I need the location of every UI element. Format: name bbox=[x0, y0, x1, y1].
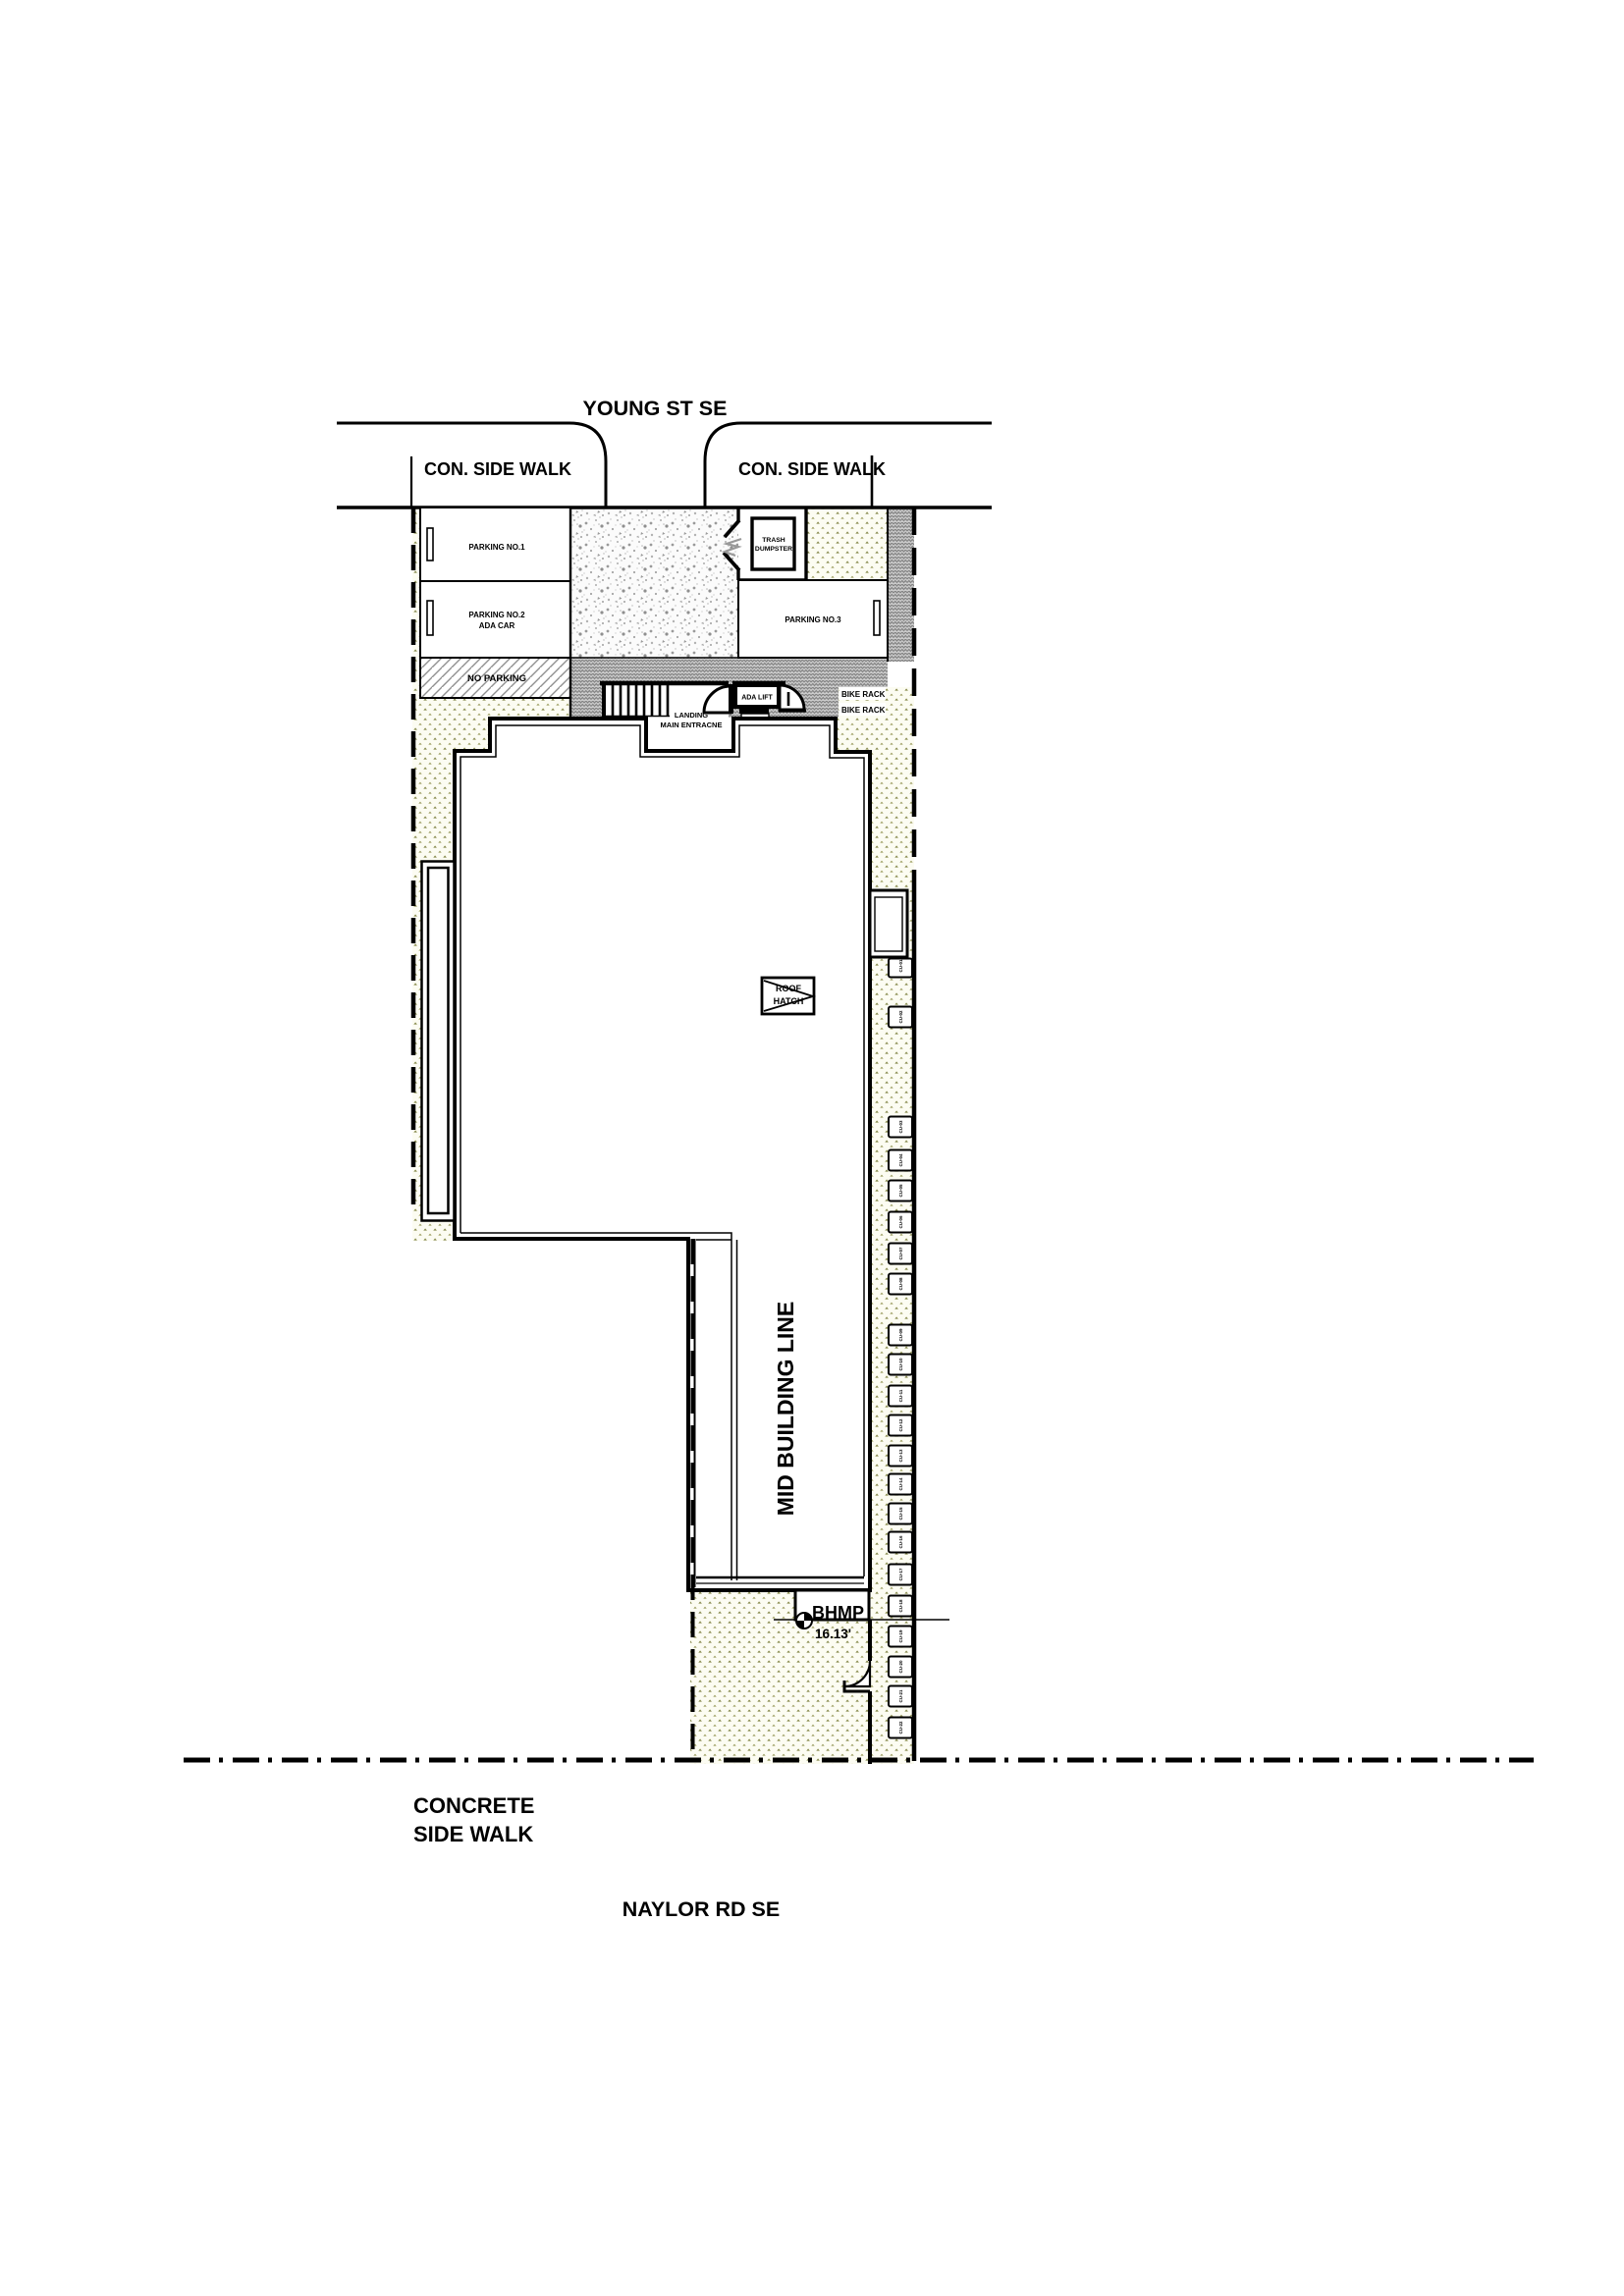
svg-text:CU-05: CU-05 bbox=[898, 1184, 903, 1198]
svg-text:CONCRETE: CONCRETE bbox=[413, 1793, 534, 1818]
svg-text:CU-16: CU-16 bbox=[898, 1535, 903, 1549]
svg-text:TRASH: TRASH bbox=[762, 537, 785, 544]
svg-text:CON. SIDE WALK: CON. SIDE WALK bbox=[424, 459, 571, 479]
svg-text:CU-18: CU-18 bbox=[898, 1599, 903, 1613]
svg-text:CU-15: CU-15 bbox=[898, 1507, 903, 1521]
svg-text:CU-07: CU-07 bbox=[898, 1247, 903, 1260]
svg-text:CU-17: CU-17 bbox=[898, 1568, 903, 1581]
svg-text:NAYLOR RD SE: NAYLOR RD SE bbox=[623, 1897, 780, 1921]
svg-text:YOUNG ST SE: YOUNG ST SE bbox=[583, 397, 728, 420]
svg-text:BIKE RACK: BIKE RACK bbox=[841, 690, 886, 699]
svg-text:CON. SIDE WALK: CON. SIDE WALK bbox=[738, 459, 886, 479]
svg-text:CU-11: CU-11 bbox=[898, 1389, 903, 1402]
svg-text:BHMP: BHMP bbox=[812, 1603, 864, 1623]
svg-text:DUMPSTER: DUMPSTER bbox=[755, 546, 792, 553]
svg-text:CU-03: CU-03 bbox=[898, 1120, 903, 1134]
svg-text:CU-19: CU-19 bbox=[898, 1629, 903, 1643]
svg-text:NO PARKING: NO PARKING bbox=[467, 673, 526, 684]
svg-text:CU-10: CU-10 bbox=[898, 1358, 903, 1371]
svg-text:CU-01: CU-01 bbox=[898, 959, 903, 973]
svg-text:CU-02: CU-02 bbox=[898, 1010, 903, 1024]
svg-text:CU-09: CU-09 bbox=[898, 1328, 903, 1342]
svg-text:HATCH: HATCH bbox=[774, 996, 804, 1006]
svg-text:MID BUILDING LINE: MID BUILDING LINE bbox=[773, 1302, 798, 1517]
svg-text:ADA LIFT: ADA LIFT bbox=[741, 695, 773, 702]
svg-text:CU-21: CU-21 bbox=[898, 1689, 903, 1703]
svg-text:CU-12: CU-12 bbox=[898, 1418, 903, 1432]
svg-text:CU-13: CU-13 bbox=[898, 1449, 903, 1463]
svg-text:CU-06: CU-06 bbox=[898, 1215, 903, 1229]
svg-text:LANDING: LANDING bbox=[675, 711, 708, 720]
svg-text:CU-22: CU-22 bbox=[898, 1721, 903, 1735]
svg-text:CU-20: CU-20 bbox=[898, 1660, 903, 1674]
svg-text:SIDE WALK: SIDE WALK bbox=[413, 1822, 533, 1846]
svg-text:CU-14: CU-14 bbox=[898, 1477, 903, 1491]
svg-text:16.13': 16.13' bbox=[815, 1627, 851, 1641]
svg-text:PARKING NO.1: PARKING NO.1 bbox=[468, 543, 525, 552]
svg-text:PARKING NO.2: PARKING NO.2 bbox=[468, 611, 525, 619]
svg-text:CU-08: CU-08 bbox=[898, 1277, 903, 1291]
svg-text:CU-04: CU-04 bbox=[898, 1153, 903, 1167]
svg-text:PARKING NO.3: PARKING NO.3 bbox=[785, 615, 841, 624]
svg-text:MAIN ENTRACNE: MAIN ENTRACNE bbox=[661, 721, 723, 729]
svg-text:ADA CAR: ADA CAR bbox=[479, 621, 515, 630]
svg-text:BIKE RACK: BIKE RACK bbox=[841, 706, 886, 715]
svg-text:ROOF: ROOF bbox=[776, 984, 802, 993]
